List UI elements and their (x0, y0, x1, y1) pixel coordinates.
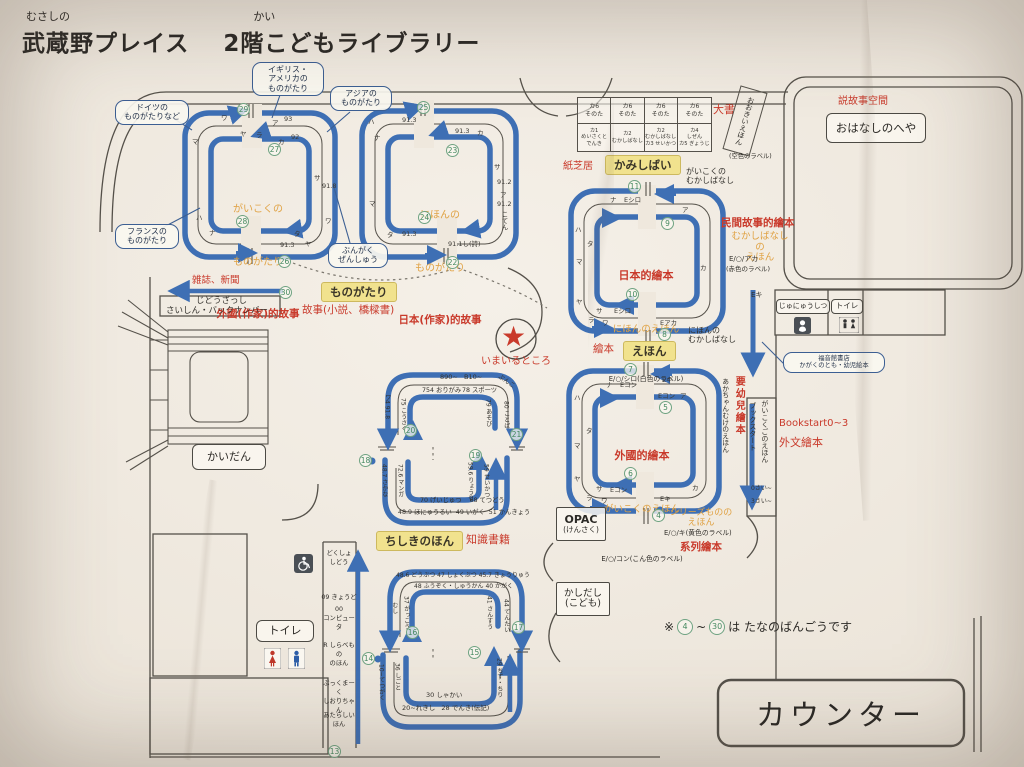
title-place-main: 武蔵野プレイス (22, 24, 189, 58)
foreign-story-kana2: ものがたり (206, 253, 310, 268)
shelf-mark: ハ (196, 212, 203, 222)
shelf-mark: 91.3 (280, 241, 294, 249)
shelf-mark: 78 スポーツ (462, 387, 497, 394)
library-floor-map: むさしの 武蔵野プレイス かい 2階こどもライブラリー ドイツの ものがたりなど… (0, 0, 1024, 767)
shelf-mark: ワ (221, 112, 228, 122)
shelf-number-badge: 10 (626, 288, 639, 301)
restroom-icons (839, 317, 859, 333)
page-title: むさしの 武蔵野プレイス かい 2階こどもライブラリー (22, 8, 480, 58)
shelf-mark: ナ (606, 379, 613, 389)
shelf-mark: ヤ (240, 128, 247, 138)
title-place: むさしの 武蔵野プレイス (22, 8, 189, 58)
foreign-picture-cn: 外國的繪本 (586, 447, 698, 463)
opac-terminal: OPAC (けんさく) (556, 507, 606, 541)
title-floor: かい 2階こどもライブラリー (223, 8, 480, 58)
foreign-folktale-note: がいこくの むかしばなし (686, 168, 734, 186)
shelf-label: ぶっくまーく しおりちゃん (321, 678, 357, 714)
shelf-mark: ワ (601, 495, 608, 505)
shelf-mark: 29 ちず・ちり (495, 658, 502, 698)
shelf-mark: 59 せいかつ (482, 464, 489, 498)
shelf-mark: Eアカ (660, 317, 677, 327)
male-icon (288, 648, 305, 669)
japan-story-kana2: ものがたり (388, 259, 492, 274)
baby-books-vertical: あかちゃんむけのえほん (720, 378, 728, 453)
shelf-mark: タ (387, 229, 394, 239)
shelf-mark: 91.3 (402, 230, 416, 238)
note-prefix: ※ (664, 620, 674, 634)
female-icon (264, 648, 281, 669)
knowledge-section-cn: 知識書籍 (466, 534, 510, 546)
shelf-mark: 36 しごと (393, 663, 400, 691)
shelf-mark: 79 あそび (484, 399, 491, 427)
shelf-cell: カ2 むかしばなし カ3 せいかつ (645, 124, 678, 151)
shelf-number-badge: 25 (417, 101, 430, 114)
shelf-mark: マ (574, 440, 581, 450)
shelf-mark: むし (390, 602, 397, 614)
shelf-mark: サ (494, 161, 501, 171)
shelf-number-badge: 15 (468, 646, 481, 659)
shelf-mark: Eコン (658, 390, 675, 400)
shelf-number-note: ※ 4 ~ 30 は たなのばんごうです (664, 618, 852, 635)
shelf-cell: カ2 むかしばなし (611, 124, 644, 151)
shelf-number-badge: 8 (658, 328, 671, 341)
toilet-left-label: トイレ (256, 620, 314, 642)
nursing-room-label: じゅにゅうしつ (776, 299, 830, 314)
shelf-number-badge: 23 (446, 144, 459, 157)
baby-icon (794, 317, 811, 334)
stairs-label-text: かいだん (207, 451, 251, 463)
magazines-cn: 雑誌、新聞 (192, 276, 240, 287)
shelf-mark: ハ (368, 116, 375, 126)
bookstart-vertical: ブックスタート (748, 402, 756, 451)
shelf-mark: Eコン (610, 484, 627, 494)
shelf-number-badge: 17 (512, 621, 525, 634)
shelf-mark: ラ (256, 129, 263, 139)
shelf-mark: タ (294, 228, 301, 238)
counter-text: カウンター (756, 692, 926, 734)
shelf-number-badge: 19 (469, 449, 482, 462)
shelf-mark: ハ (575, 224, 582, 234)
shelf-mark: 59.6 りょうり (466, 462, 473, 501)
bookstart-label: Bookstart0~3 (779, 418, 848, 429)
shelf-mark: 48 ふうぞく・しゅうかん 40 かがく (414, 584, 513, 591)
shelf-mark: 37 がっこう (402, 596, 409, 630)
shelf-number-badge: 7 (624, 363, 637, 376)
shelf-mark: ラ (588, 314, 595, 324)
shelf-mark: サ (314, 172, 321, 182)
shelf-mark: 30 しゃかい (426, 692, 462, 699)
toilet-right-label: トイレ (831, 299, 863, 314)
picture-section-cn: 繪本 (593, 344, 614, 356)
shelf-mark: ワ4 91.8 (383, 394, 390, 419)
folk-tales-callnumber: E/○/アカ (729, 256, 758, 264)
stairs-label: かいだん (192, 444, 266, 470)
shelf-mark: 44 てんたい (502, 599, 509, 633)
shelf-number-badge: 26 (278, 255, 291, 268)
japan-story-cn: 日本(作家)的故事 (388, 312, 492, 327)
note-from-badge: 4 (677, 619, 693, 635)
foreign-picture-callnumber: E/○/コン(こん色のラベル) (586, 553, 698, 563)
shelf-mark: 10~てつがく (377, 664, 384, 701)
shelf-mark: ナ (374, 132, 381, 142)
japan-story-label: にほんの ものがたり 日本(作家)的故事 (388, 168, 492, 365)
lending-desk: かしだし (こども) (556, 582, 610, 616)
kamishibai-cn: 紙芝居 (563, 161, 593, 172)
folk-tales-cn: 民間故事的繪本 (721, 218, 795, 230)
big-books-label: おおきいえほん (733, 95, 757, 146)
shelf-mark: カ (278, 136, 285, 146)
shelf-mark: ア (272, 117, 279, 127)
shelf-mark: カ (477, 127, 484, 137)
japan-picture-cn: 日本的繪本 (590, 267, 702, 283)
shelf-number-badge: 18 (359, 454, 372, 467)
shelf-mark: マ (576, 256, 583, 266)
series-callnumber: E/○/キ(黄色のラベル) (664, 530, 732, 538)
shelf-mark: タ (586, 425, 593, 435)
shelf-number-badge: 9 (661, 217, 674, 230)
knowledge-section-label: ちしきのほん (376, 531, 463, 551)
shelf-mark: カ (700, 262, 707, 272)
shelf-mark: ヤ (574, 473, 581, 483)
shelf-mark: タ (587, 238, 594, 248)
shelf-mark: 91.1し(詩) (448, 238, 481, 248)
shelf-mark: ア (682, 204, 689, 214)
story-room-label: おはなしのへや (826, 113, 926, 143)
callout-literature: ぶんがく ぜんしゅう (328, 243, 388, 268)
callout-fukuinkan: 福音館書店 かがくのとも・幼児絵本 (783, 352, 885, 373)
shelf-mark: 41 さんすう (485, 596, 492, 630)
story-section-cn: 故事(小説、橋樑書) (302, 305, 394, 317)
shelf-mark: Eキ (660, 493, 671, 503)
shelf-label: R しらべもの のほん (321, 640, 357, 667)
series-kana: シリーズものの えほん (668, 508, 734, 528)
shelf-number-badge: 6 (624, 467, 637, 480)
shelf-mark: 20~れきし 28 でんき(伝記) (402, 705, 489, 712)
shelf-range-label: 890~ B10~ (440, 374, 482, 381)
shelf-label: どくしょ しどう (321, 548, 357, 566)
callout-france: フランスの ものがたり (115, 224, 179, 249)
shelf-mark: マ (192, 136, 199, 146)
shelf-mark: ナ (610, 194, 617, 204)
shelf-mark: 48.7 さかな (380, 464, 387, 497)
kamishibai-shelf-grid: カ6 そのた カ6 そのた カ6 そのた カ6 そのた カ1 めいさくと でんき… (577, 97, 712, 152)
toilet-left-text: トイレ (269, 625, 302, 637)
note-to-badge: 30 (709, 619, 725, 635)
foreign-story-label: がいこくの ものがたり 外國(作家)的故事 (206, 162, 310, 359)
note-tilde: ~ (696, 620, 706, 634)
title-floor-furigana: かい (253, 8, 480, 24)
shelf-mark: 91.3 (455, 127, 469, 135)
shelf-mark: 754 おりがみ (422, 387, 461, 394)
title-floor-main: 2階こどもライブラリー (223, 24, 480, 58)
shelf-mark: 48.9 ほにゅうるい 49 いがく 51 かんきょう (398, 509, 530, 516)
lending-sublabel: (こども) (565, 599, 601, 609)
japan-folktale-note: にほんの むかしばなし (688, 327, 736, 345)
shelf-mark: こてん (499, 211, 509, 231)
baby-books-cn-vertical: 要幼兒繪本 (733, 376, 744, 436)
shelf-number-badge: 5 (659, 401, 672, 414)
foreign-language-books-vertical: がいこくごのえほん (760, 400, 768, 463)
shelf-range-label: 48.6 どうぶつ 47 しょくぶつ 45.7 きょうりゅう (396, 573, 530, 580)
shelf-number-badge: 29 (237, 103, 250, 116)
shelf-mark: ハ (574, 392, 581, 402)
picture-section-label: えほん (623, 341, 676, 361)
shelf-mark: 72.6 マンガ (396, 464, 403, 497)
callout-germany: ドイツの ものがたりなど (115, 100, 189, 125)
shelf-mark: 80 ことば (502, 401, 509, 429)
shelf-mark: 93 (284, 115, 292, 123)
story-room-cn: 説故事空間 (838, 96, 888, 107)
shelf-mark: ア (500, 189, 507, 199)
big-books-note: (空色のラベル) (729, 153, 772, 160)
shelf-mark: カ (692, 482, 699, 492)
series-cn: 系列繪本 (680, 542, 722, 554)
shelf-cell: カ1 めいさくと でんき (578, 124, 611, 151)
shelf-number-badge: 22 (446, 256, 459, 269)
shelf-mark: Eキ (662, 374, 673, 384)
opac-sublabel: (けんさく) (563, 526, 599, 534)
shelf-label: 00 コンピュータ (321, 606, 357, 631)
story-section-label: ものがたり (321, 282, 397, 302)
shelf-mark: ラ (586, 492, 593, 502)
note-suffix: は たなのばんごうです (728, 618, 852, 635)
shelf-mark: ナ (209, 227, 216, 237)
shelf-mark: ヤ (305, 238, 312, 248)
shelf-mark: 91.2 (497, 178, 511, 186)
title-place-furigana: むさしの (26, 8, 189, 24)
story-room-label-text: おはなしのへや (836, 122, 917, 135)
you-are-here-label: いまいるところ (481, 356, 551, 367)
shelf-mark: マ (369, 198, 376, 208)
shelf-number-badge: 20 (404, 424, 417, 437)
shelf-label: あたらしい ほん (321, 710, 357, 728)
foreign-picture-label: 外國的繪本 がいこくのえほん E/○/コン(こん色のラベル) (586, 409, 698, 601)
shelf-number-badge: 30 (279, 286, 292, 299)
you-are-here-star-icon: ★ (501, 321, 526, 352)
shelf-number-badge: 16 (406, 626, 419, 639)
shelf-mark: 91.3 (402, 116, 416, 124)
japan-story-kana1: にほんの (388, 206, 492, 221)
shelf-number-badge: 4 (652, 509, 665, 522)
wheelchair-icon (294, 554, 313, 573)
shelf-mark: Eコン (620, 379, 637, 389)
foreign-picture-cn-label: 外文繪本 (779, 437, 823, 449)
shelf-number-badge: 24 (418, 211, 431, 224)
shelf-mark: ワ (602, 317, 609, 327)
kamishibai-label: かみしばい (605, 155, 681, 175)
shelf-mark: ア (680, 390, 687, 400)
foreign-story-kana1: がいこくの (206, 200, 310, 215)
age0-label: 0さい~ (751, 486, 772, 493)
shelf-mark: サ (596, 305, 603, 315)
shelf-label: 09 きょうど (321, 592, 357, 601)
shelf-number-badge: 13 (328, 745, 341, 758)
callout-asia: アジアの ものがたり (330, 86, 392, 111)
shelf-number-badge: 28 (236, 215, 249, 228)
shelf-cell: カ6 そのた (578, 98, 611, 124)
counter-label: カウンター (718, 680, 964, 746)
shelf-mark: ヤ (576, 296, 583, 306)
shelf-cell: カ6 そのた (678, 98, 711, 124)
shelf-cell: カ4 しぜん カ5 ぎょうじ (678, 124, 711, 151)
shelf-number-badge: 14 (362, 652, 375, 665)
folk-tales-note: (赤色のラベル) (726, 266, 770, 273)
shelf-cell: カ6 そのた (645, 98, 678, 124)
shelf-number-badge: 21 (510, 428, 523, 441)
shelf-number-badge: 11 (628, 180, 641, 193)
age3-label: 3さい~ (751, 499, 772, 506)
shelf-mark: 91.2 (497, 200, 511, 208)
shelf-mark: 70 げいじゅつ 68 てつどう (420, 497, 505, 504)
shelf-mark: サ (596, 483, 603, 493)
shelf-mark: 92 (291, 133, 299, 141)
shelf-mark: Eキ (751, 292, 762, 300)
callout-uk-us: イギリス・ アメリカの ものがたり (252, 62, 324, 96)
shelf-mark: ワ (325, 215, 332, 225)
shelf-mark: Eシロ (614, 305, 631, 315)
nursing-room-text: じゅにゅうしつ (779, 303, 828, 311)
toilet-right-text: トイレ (836, 302, 859, 310)
shelf-mark: Eシロ (624, 194, 641, 204)
shelf-mark: 91.8 (322, 182, 336, 190)
magazines-line2: さいしん・バックナンバー (166, 307, 268, 317)
shelf-cell: カ6 そのた (611, 98, 644, 124)
